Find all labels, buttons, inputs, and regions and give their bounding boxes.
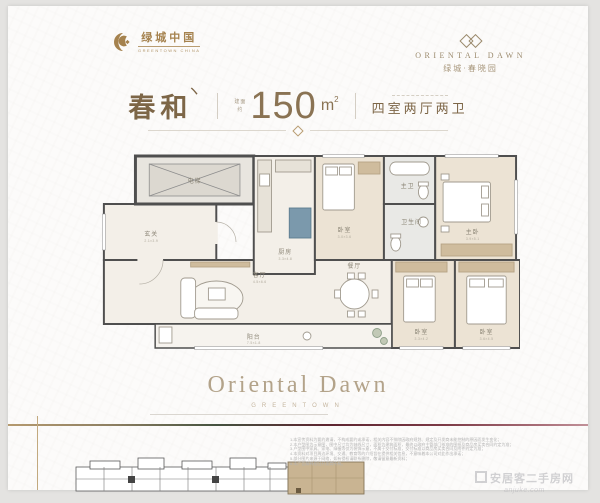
layout-dashed-line	[392, 95, 448, 96]
oriental-dawn-logo-en: ORIENTAL DAWN	[415, 51, 526, 60]
svg-text:3.6×4.5: 3.6×4.5	[480, 337, 494, 341]
room-label-kitchen: 厨房	[278, 248, 292, 256]
disclaimer-line: 6.本广告解释权归开发商所有。	[290, 462, 528, 467]
layout-group: 四室两厅两卫	[372, 95, 468, 117]
greentown-logo: 绿城中国 GREENTOWN CHINA	[113, 32, 200, 53]
room-label-master-bedroom: 主卧	[466, 228, 480, 236]
gradient-divider-line	[8, 424, 588, 426]
poster-card: 绿城中国 GREENTOWN CHINA ORIENTAL DAWN 绿城·春晓…	[8, 6, 588, 490]
greentown-crescent-icon	[113, 32, 133, 52]
svg-text:3.9×5.1: 3.9×5.1	[466, 237, 480, 241]
title-separator	[148, 127, 448, 134]
corner-watermark: 安居客二手房网 anjuke.com	[475, 470, 574, 494]
svg-text:7.5×1.8: 7.5×1.8	[247, 341, 261, 345]
oriental-dawn-knot-icon	[458, 34, 484, 48]
separator-diamond-icon	[292, 125, 303, 136]
svg-text:3.0×3.6: 3.0×3.6	[338, 235, 352, 239]
center-watermark-sub: GREENTOWN	[8, 403, 588, 409]
room-label-foyer: 玄关	[144, 230, 158, 238]
area-group: 建面 约 150 m2	[234, 89, 338, 123]
room-label-bath: 卫生间	[401, 218, 422, 226]
title-bar: 春和 ヽ 建面 约 150 m2 四室两厅两卫	[8, 86, 588, 125]
corner-watermark-line1: 安居客二手房网	[475, 470, 574, 486]
oriental-dawn-logo: ORIENTAL DAWN 绿城·春晓园	[415, 34, 526, 74]
area-value: 150	[250, 89, 316, 123]
floorplan: 电梯 玄关 2.1×3.9 厨房 3.3×4.8 卧室 3.0×3.6 主卫 卫…	[96, 152, 520, 352]
title-divider-1	[217, 93, 218, 119]
disclaimer-block: 1.本宣传资料为要约邀请，不构成要约或承诺，相关内容不排除因政府规划、规定及开发…	[290, 438, 528, 466]
room-label-master-bath: 主卫	[401, 182, 415, 190]
svg-text:3.3×4.8: 3.3×4.8	[278, 257, 292, 261]
greentown-logo-en: GREENTOWN CHINA	[138, 48, 200, 53]
room-label-bedroom-c: 卧室	[480, 328, 494, 336]
left-accent-line	[37, 416, 38, 490]
room-label-living: 客厅	[253, 271, 267, 279]
area-superscript: 2	[334, 95, 338, 104]
corner-watermark-line2: anjuke.com	[475, 487, 574, 494]
room-label-bedroom-b: 卧室	[415, 328, 429, 336]
floorplan-drawing: 电梯 玄关 2.1×3.9 厨房 3.3×4.8 卧室 3.0×3.6 主卫 卫…	[96, 152, 520, 352]
room-label-dining: 餐厅	[347, 262, 361, 270]
area-label-line1: 建面	[234, 98, 246, 105]
room-label-elevator: 电梯	[188, 177, 202, 185]
center-watermark: Oriental Dawn GREENTOWN	[8, 372, 588, 409]
greentown-logo-cn: 绿城中国	[141, 32, 197, 44]
center-watermark-title: Oriental Dawn	[8, 372, 588, 399]
layout-text: 四室两厅两卫	[372, 98, 468, 117]
svg-text:4.5×6.6: 4.5×6.6	[253, 280, 267, 284]
svg-text:3.3×4.2: 3.3×4.2	[415, 337, 429, 341]
room-label-bedroom-a: 卧室	[338, 226, 352, 234]
title-divider-2	[355, 93, 356, 119]
room-label-balcony: 阳台	[247, 333, 261, 341]
area-unit: m2	[321, 97, 339, 115]
unit-name: 春和	[128, 86, 192, 125]
oriental-dawn-logo-cn: 绿城·春晓园	[443, 63, 498, 74]
watermark-underline	[150, 414, 328, 415]
svg-text:2.1×3.9: 2.1×3.9	[144, 239, 158, 243]
unit-name-stroke: ヽ	[186, 80, 201, 101]
greentown-logo-rule	[138, 46, 200, 47]
corner-watermark-logo-icon	[475, 471, 487, 483]
area-label-line2: 约	[237, 106, 243, 113]
